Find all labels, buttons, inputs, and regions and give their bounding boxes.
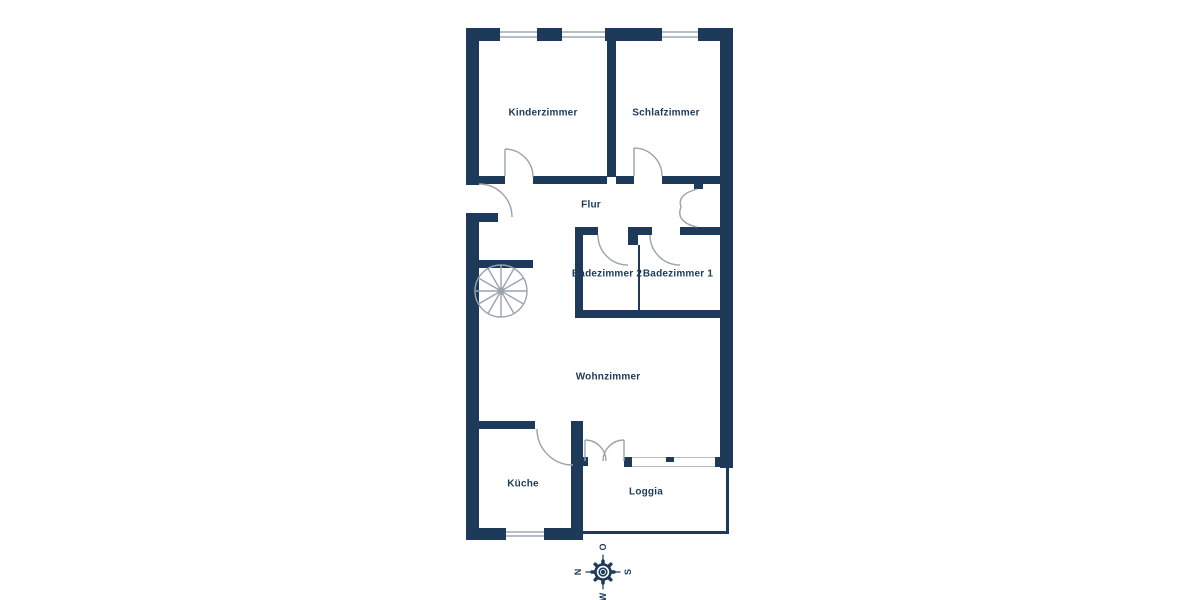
door-arc-badezimmer-2	[598, 235, 628, 265]
door-swings-layer	[0, 0, 1200, 600]
compass-west-label: W	[598, 593, 608, 600]
door-arc-entrance	[479, 184, 512, 217]
room-label-badezimmer-2: Badezimmer 2	[572, 269, 642, 280]
room-label-badezimmer-1: Badezimmer 1	[643, 269, 713, 280]
room-label-kinderzimmer: Kinderzimmer	[508, 108, 577, 119]
room-label-wohnzimmer: Wohnzimmer	[576, 372, 641, 383]
room-label-kueche: Küche	[507, 479, 539, 490]
room-label-flur: Flur	[581, 200, 601, 211]
compass-south-label: S	[623, 569, 633, 575]
door-arc-schlafzimmer	[634, 148, 662, 176]
floor-plan: Kinderzimmer Schlafzimmer Flur Badezimme…	[0, 0, 1200, 600]
compass-rose: N O S W	[575, 544, 631, 600]
door-arc-badezimmer-1	[650, 235, 680, 265]
door-arc-kinderzimmer	[505, 149, 533, 177]
compass-wheel-icon	[583, 552, 623, 592]
compass-north-label: N	[573, 569, 583, 576]
spiral-staircase	[475, 265, 527, 317]
room-label-schlafzimmer: Schlafzimmer	[632, 108, 699, 119]
compass-east-label: O	[598, 543, 608, 550]
room-label-loggia: Loggia	[629, 487, 663, 498]
door-swing-flur	[680, 189, 697, 227]
door-arc-kueche	[537, 429, 573, 465]
